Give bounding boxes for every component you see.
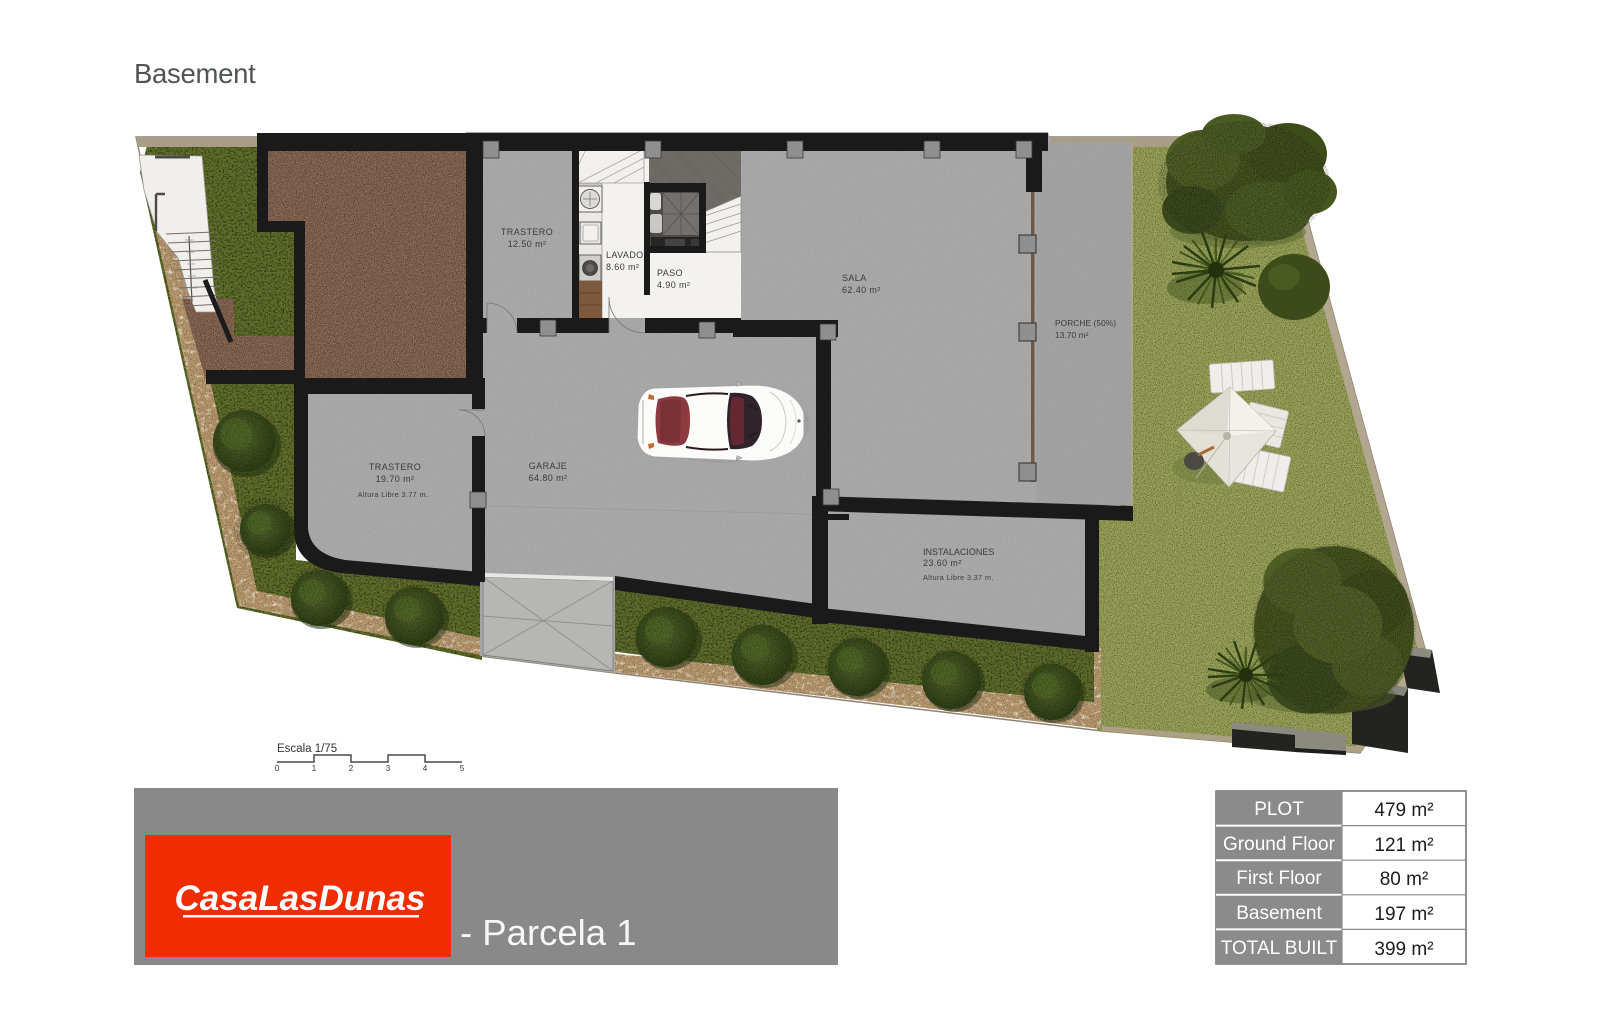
svg-text:Basement: Basement (134, 58, 256, 89)
svg-text:PLOT: PLOT (1254, 799, 1304, 820)
svg-text:INSTALACIONES: INSTALACIONES (923, 547, 994, 557)
svg-text:4.90 m²: 4.90 m² (657, 280, 690, 290)
svg-text:GARAJE: GARAJE (529, 461, 567, 471)
svg-text:Ground Floor: Ground Floor (1223, 834, 1336, 855)
svg-text:- Parcela 1: - Parcela 1 (460, 912, 637, 953)
svg-text:19.70 m²: 19.70 m² (376, 474, 415, 484)
svg-text:Escala 1/75: Escala 1/75 (277, 743, 337, 755)
svg-text:5: 5 (460, 764, 465, 773)
svg-text:399 m²: 399 m² (1374, 939, 1433, 960)
svg-text:TRASTERO: TRASTERO (501, 227, 553, 237)
svg-text:2: 2 (349, 764, 354, 773)
svg-text:PASO: PASO (657, 268, 683, 278)
svg-text:13.70 m²: 13.70 m² (1055, 330, 1089, 340)
svg-text:80 m²: 80 m² (1380, 869, 1429, 890)
svg-text:1: 1 (312, 764, 317, 773)
svg-text:4: 4 (423, 764, 428, 773)
svg-text:CasaLasDunas: CasaLasDunas (175, 879, 426, 918)
svg-text:121 m²: 121 m² (1374, 835, 1433, 856)
svg-text:12.50 m²: 12.50 m² (508, 239, 547, 249)
svg-text:479 m²: 479 m² (1374, 800, 1433, 821)
svg-text:0: 0 (275, 764, 280, 773)
svg-text:TRASTERO: TRASTERO (369, 462, 421, 472)
svg-text:23.60 m²: 23.60 m² (923, 558, 962, 568)
svg-text:Altura Libre 3.77 m.: Altura Libre 3.77 m. (358, 490, 429, 499)
svg-text:8.60 m²: 8.60 m² (606, 262, 639, 272)
svg-text:LAVADO: LAVADO (606, 250, 644, 260)
svg-text:SALA: SALA (842, 273, 867, 283)
svg-text:3: 3 (386, 764, 391, 773)
svg-text:Altura Libre 3.37 m.: Altura Libre 3.37 m. (923, 573, 994, 582)
svg-text:62.40 m²: 62.40 m² (842, 285, 881, 295)
svg-text:Basement: Basement (1236, 903, 1322, 924)
svg-text:197 m²: 197 m² (1374, 904, 1433, 925)
svg-text:First Floor: First Floor (1236, 868, 1322, 889)
svg-text:64.80 m²: 64.80 m² (529, 473, 568, 483)
svg-text:TOTAL BUILT: TOTAL BUILT (1221, 938, 1338, 959)
svg-text:PORCHE (50%): PORCHE (50%) (1055, 318, 1116, 328)
